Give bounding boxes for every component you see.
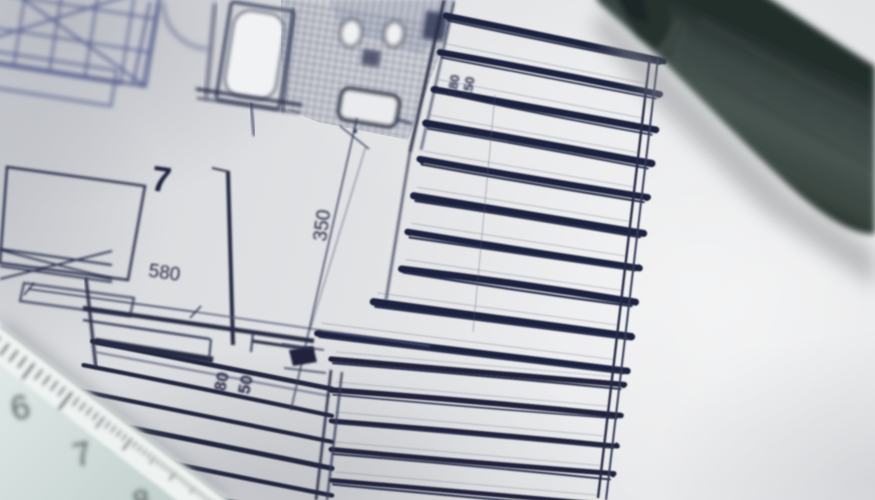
svg-text:80: 80 [210,370,233,392]
svg-text:50: 50 [234,373,257,395]
svg-text:580: 580 [147,261,181,286]
svg-text:350: 350 [310,208,335,242]
